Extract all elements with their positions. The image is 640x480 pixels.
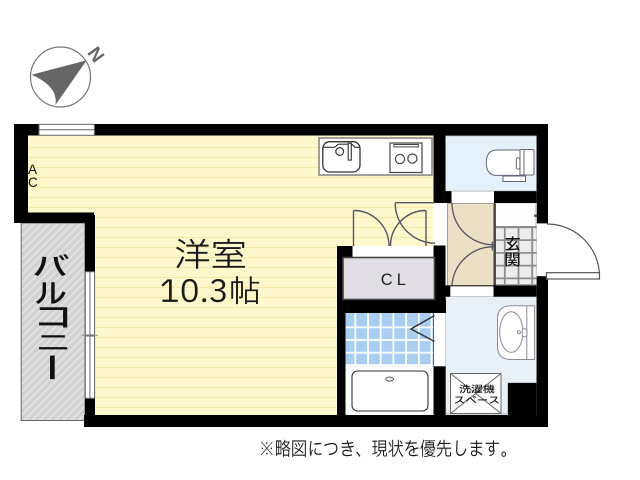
svg-text:C: C bbox=[381, 271, 393, 289]
svg-text:C: C bbox=[28, 175, 38, 190]
svg-text:L: L bbox=[397, 271, 406, 289]
